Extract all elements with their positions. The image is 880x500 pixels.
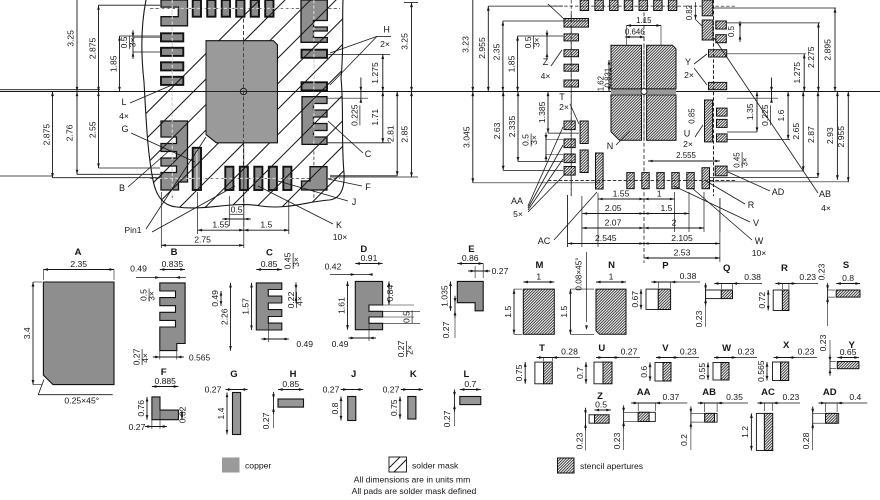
svg-text:2.955: 2.955: [836, 126, 846, 148]
svg-text:1.6: 1.6: [776, 109, 786, 121]
svg-text:H: H: [383, 25, 390, 35]
svg-text:0.565: 0.565: [756, 360, 766, 382]
svg-text:1.2: 1.2: [740, 426, 750, 438]
svg-text:P: P: [662, 260, 669, 271]
svg-text:0.646: 0.646: [625, 27, 645, 36]
svg-text:0.23: 0.23: [680, 347, 697, 357]
svg-text:2.955: 2.955: [477, 37, 487, 59]
svg-text:V: V: [662, 343, 669, 354]
svg-text:5×: 5×: [513, 209, 523, 219]
svg-text:0.82: 0.82: [685, 5, 694, 20]
svg-text:0.85: 0.85: [261, 259, 278, 269]
svg-text:AB: AB: [819, 189, 831, 199]
svg-text:1.5: 1.5: [559, 306, 569, 318]
svg-text:2.275: 2.275: [806, 46, 816, 68]
svg-text:0.25×45°: 0.25×45°: [64, 396, 99, 406]
svg-text:3.23: 3.23: [461, 36, 471, 53]
svg-text:0.7: 0.7: [464, 379, 476, 389]
svg-text:10×: 10×: [752, 248, 767, 258]
svg-text:1.55: 1.55: [613, 188, 630, 198]
svg-text:0.42: 0.42: [325, 262, 342, 272]
svg-text:0.23: 0.23: [694, 310, 704, 327]
svg-text:0.49: 0.49: [210, 290, 220, 307]
svg-text:1.035: 1.035: [439, 285, 449, 307]
svg-text:2.63: 2.63: [492, 122, 502, 139]
svg-text:2.85: 2.85: [400, 126, 410, 143]
svg-text:solder mask: solder mask: [412, 461, 459, 471]
svg-text:R: R: [781, 263, 788, 274]
svg-text:0.27: 0.27: [442, 410, 452, 427]
svg-text:G: G: [230, 369, 237, 380]
svg-text:0.86: 0.86: [462, 253, 479, 263]
svg-text:0.37: 0.37: [663, 392, 680, 402]
svg-text:0.5: 0.5: [595, 400, 607, 410]
svg-text:2×: 2×: [683, 139, 693, 149]
svg-text:0.8: 0.8: [330, 402, 340, 414]
svg-text:A: A: [75, 247, 82, 258]
svg-text:1.15: 1.15: [636, 16, 652, 25]
svg-text:1.35: 1.35: [745, 103, 755, 120]
svg-text:AA: AA: [637, 387, 651, 398]
svg-text:B: B: [171, 247, 178, 258]
svg-text:AD: AD: [772, 187, 785, 197]
svg-text:2.875: 2.875: [41, 124, 51, 146]
svg-text:2.93: 2.93: [825, 127, 835, 144]
svg-text:J: J: [351, 369, 356, 380]
svg-text:0.23: 0.23: [738, 347, 755, 357]
svg-text:3.045: 3.045: [462, 126, 472, 148]
svg-text:0.2: 0.2: [679, 434, 689, 446]
svg-text:3×: 3×: [147, 291, 157, 301]
svg-text:T: T: [559, 92, 565, 102]
svg-text:AB: AB: [702, 387, 716, 398]
svg-text:0.91: 0.91: [361, 253, 378, 263]
svg-text:2×: 2×: [405, 345, 415, 355]
svg-text:0.23: 0.23: [818, 334, 828, 351]
svg-text:2.07: 2.07: [605, 217, 622, 227]
svg-text:0.5: 0.5: [727, 25, 736, 37]
svg-text:0.23: 0.23: [612, 432, 622, 449]
svg-text:2.76: 2.76: [65, 124, 75, 141]
svg-text:4×: 4×: [821, 203, 831, 213]
svg-text:1.275: 1.275: [370, 62, 380, 84]
svg-text:0.27: 0.27: [323, 385, 340, 395]
svg-text:0.32: 0.32: [178, 406, 188, 423]
svg-text:4×: 4×: [119, 111, 129, 121]
svg-text:1.4: 1.4: [216, 407, 226, 419]
svg-text:2.895: 2.895: [822, 39, 832, 61]
svg-text:0.27: 0.27: [129, 422, 146, 432]
svg-text:AC: AC: [538, 236, 551, 246]
svg-text:0.23: 0.23: [799, 272, 816, 282]
svg-text:J: J: [352, 197, 357, 207]
svg-text:3×: 3×: [532, 37, 542, 47]
svg-text:3.25: 3.25: [66, 30, 76, 47]
svg-text:0.08×45°: 0.08×45°: [575, 257, 584, 290]
svg-text:K: K: [410, 369, 417, 380]
svg-text:0.565: 0.565: [189, 353, 211, 363]
svg-text:0.76: 0.76: [136, 400, 146, 417]
svg-text:0.75: 0.75: [389, 399, 399, 416]
svg-text:0.75: 0.75: [514, 364, 524, 381]
svg-text:2.105: 2.105: [671, 233, 693, 243]
svg-text:2×: 2×: [380, 39, 390, 49]
svg-text:1.5: 1.5: [503, 306, 513, 318]
svg-text:L: L: [121, 97, 126, 107]
svg-text:2.55: 2.55: [87, 121, 97, 138]
svg-text:0.28: 0.28: [801, 432, 811, 449]
svg-text:2.555: 2.555: [676, 151, 696, 160]
svg-text:0.38: 0.38: [744, 272, 761, 282]
svg-text:All dimensions are in units mm: All dimensions are in units mm: [354, 475, 471, 485]
svg-text:2.81: 2.81: [385, 125, 395, 142]
svg-text:copper: copper: [245, 461, 271, 471]
svg-text:N: N: [607, 141, 614, 151]
svg-text:0.23: 0.23: [816, 263, 826, 280]
svg-text:Z: Z: [543, 57, 549, 67]
svg-text:Y: Y: [685, 57, 691, 67]
svg-text:2.335: 2.335: [507, 116, 517, 138]
svg-text:0.27: 0.27: [205, 385, 222, 395]
svg-text:0.27: 0.27: [261, 412, 271, 429]
svg-text:1.5: 1.5: [661, 203, 673, 213]
svg-text:2.87: 2.87: [806, 126, 816, 143]
svg-text:4×: 4×: [140, 353, 150, 363]
svg-text:2.53: 2.53: [674, 247, 691, 257]
svg-text:X: X: [783, 340, 790, 351]
svg-text:AC: AC: [761, 387, 775, 398]
svg-text:0.55: 0.55: [697, 363, 707, 380]
svg-text:0.27: 0.27: [492, 266, 509, 276]
svg-text:0.49: 0.49: [332, 339, 349, 349]
svg-text:0.85: 0.85: [282, 379, 299, 389]
svg-text:0.65: 0.65: [840, 347, 857, 357]
svg-text:G: G: [121, 124, 128, 134]
svg-text:1: 1: [609, 271, 614, 281]
svg-text:0.49: 0.49: [296, 339, 313, 349]
svg-text:F: F: [365, 182, 371, 192]
svg-text:Q: Q: [723, 263, 730, 274]
svg-text:3.25: 3.25: [400, 33, 410, 50]
svg-text:1.5: 1.5: [260, 220, 272, 230]
svg-text:1.57: 1.57: [240, 298, 250, 315]
svg-text:0.67: 0.67: [630, 291, 640, 308]
svg-text:3.4: 3.4: [22, 327, 32, 339]
svg-text:3×: 3×: [529, 135, 539, 145]
svg-text:0.5: 0.5: [231, 205, 243, 215]
svg-text:0.38: 0.38: [680, 271, 697, 281]
svg-text:AA: AA: [511, 196, 523, 206]
svg-text:R: R: [748, 200, 755, 210]
svg-text:0.23: 0.23: [798, 347, 815, 357]
svg-text:T: T: [539, 343, 545, 354]
svg-text:S: S: [843, 260, 849, 271]
svg-text:C: C: [365, 149, 372, 159]
svg-text:1.85: 1.85: [506, 55, 516, 72]
svg-text:1: 1: [657, 188, 662, 198]
svg-text:0.72: 0.72: [757, 292, 767, 309]
svg-text:All pads are solder mask defin: All pads are solder mask defined: [352, 486, 477, 495]
svg-text:0.23: 0.23: [783, 392, 800, 402]
svg-text:0.6: 0.6: [639, 366, 649, 378]
svg-text:W: W: [722, 343, 731, 354]
svg-text:K: K: [336, 220, 342, 230]
svg-text:0.27: 0.27: [383, 385, 400, 395]
svg-text:U: U: [684, 129, 691, 139]
svg-text:2.35: 2.35: [70, 259, 87, 269]
svg-text:3×: 3×: [741, 157, 750, 166]
svg-text:N: N: [608, 260, 615, 271]
svg-text:0.831: 0.831: [604, 68, 613, 88]
svg-text:0.225: 0.225: [760, 104, 770, 126]
svg-text:AD: AD: [823, 387, 837, 398]
svg-text:0.4: 0.4: [849, 392, 861, 402]
svg-text:2.26: 2.26: [219, 308, 229, 325]
svg-text:0.8: 0.8: [842, 273, 854, 283]
svg-text:0.23: 0.23: [574, 432, 584, 449]
svg-text:0.85: 0.85: [688, 108, 697, 124]
svg-text:2.875: 2.875: [87, 37, 97, 59]
svg-text:B: B: [119, 183, 125, 193]
svg-text:0.225: 0.225: [349, 104, 359, 126]
svg-text:0.27: 0.27: [441, 321, 451, 338]
svg-text:U: U: [598, 343, 605, 354]
svg-text:2.65: 2.65: [791, 123, 801, 140]
svg-text:1.71: 1.71: [370, 109, 380, 126]
svg-text:2×: 2×: [684, 70, 694, 80]
svg-text:2×: 2×: [559, 102, 569, 112]
svg-text:0.49: 0.49: [130, 264, 147, 274]
svg-text:1.55: 1.55: [212, 220, 229, 230]
svg-text:2: 2: [672, 217, 677, 227]
svg-text:M: M: [535, 260, 543, 271]
svg-text:4×: 4×: [541, 71, 551, 81]
svg-text:V: V: [753, 218, 759, 228]
svg-text:1.85: 1.85: [108, 55, 118, 72]
svg-text:1: 1: [536, 271, 541, 281]
svg-text:W: W: [755, 236, 764, 246]
svg-text:0.885: 0.885: [154, 376, 176, 386]
svg-text:1.275: 1.275: [792, 62, 802, 84]
svg-text:2.35: 2.35: [492, 43, 502, 60]
svg-text:0.27: 0.27: [621, 347, 638, 357]
svg-text:0.35: 0.35: [726, 392, 743, 402]
svg-text:3×: 3×: [128, 37, 138, 47]
svg-text:2.75: 2.75: [194, 235, 211, 245]
svg-text:stencil apertures: stencil apertures: [580, 461, 643, 471]
svg-text:Pin1: Pin1: [124, 225, 141, 235]
svg-text:10×: 10×: [333, 232, 348, 242]
svg-text:0.7: 0.7: [575, 367, 585, 379]
svg-text:3×: 3×: [291, 257, 301, 267]
svg-text:2.05: 2.05: [605, 203, 622, 213]
svg-text:0.835: 0.835: [162, 259, 184, 269]
svg-text:0.84: 0.84: [385, 285, 395, 302]
svg-text:C: C: [266, 248, 273, 259]
svg-text:1.385: 1.385: [537, 101, 547, 123]
svg-text:0.28: 0.28: [561, 347, 578, 357]
svg-text:1.61: 1.61: [336, 297, 346, 314]
